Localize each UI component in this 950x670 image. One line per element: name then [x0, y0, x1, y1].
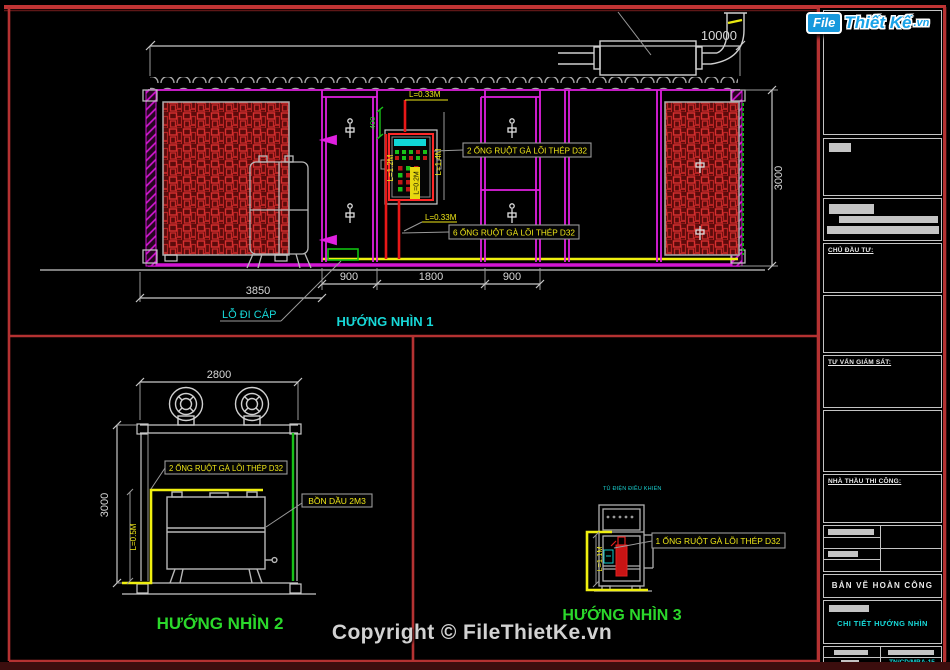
- label-2ong-text: 2 ỐNG RUỘT GÀ LÕI THÉP D32: [467, 145, 587, 156]
- copyright-watermark: Copyright © FileThietKe.vn: [322, 621, 622, 645]
- redacted-text-block: [834, 650, 868, 655]
- logo-folder-icon: File: [806, 12, 842, 34]
- label-2ong-v1: 2 ỐNG RUỘT GÀ LÕI THÉP D32: [434, 143, 591, 157]
- title-block: CHỦ ĐẦU TƯ: TƯ VẤN GIÁM SÁT: NHÀ THẦU TH…: [818, 8, 946, 668]
- dim-3850: 3850: [246, 285, 270, 297]
- sheet-borders: [4, 7, 946, 661]
- bottom-edge-strip: [0, 662, 950, 670]
- titleblock-drawing-type: BẢN VẼ HOÀN CÔNG: [823, 574, 942, 598]
- label-bondau: BỒN DẦU 2M3: [266, 494, 372, 527]
- dim-3000-v1: 3000: [773, 166, 785, 190]
- dim-10000: 10000: [701, 28, 737, 43]
- louver-panel-left: [163, 102, 289, 255]
- view1-title: HƯỚNG NHÌN 1: [337, 314, 434, 329]
- titleblock-section-1: [823, 138, 942, 196]
- view2-dim-3000: 3000: [99, 421, 138, 587]
- view1-dim-400: 400: [368, 107, 383, 139]
- dim-900a: 900: [340, 271, 358, 283]
- len-11: L=1.1M: [595, 546, 604, 571]
- redacted-text-block: [839, 216, 938, 223]
- cad-screenshot: 10000: [0, 0, 950, 670]
- label-2ong-v2-text: 2 ỐNG RUỘT GÀ LÕI THÉP D32: [169, 462, 283, 473]
- supervisor-label: TƯ VẤN GIÁM SÁT:: [828, 359, 891, 366]
- label-6ong-v1: 6 ỐNG RUỘT GÀ LÕI THÉP D32: [402, 225, 579, 239]
- dim-2800: 2800: [207, 369, 231, 381]
- len-12: L=1.2M: [386, 154, 395, 181]
- label-6ong-text: 6 ỐNG RUỘT GÀ LÕI THÉP D32: [453, 227, 575, 238]
- len-033-top: L=0.33M: [409, 90, 441, 99]
- louver-panel-right: [665, 102, 739, 255]
- drawing-title-label: CHI TIẾT HƯỚNG NHÌN: [824, 619, 941, 628]
- len-14: L=1.4M: [434, 148, 443, 175]
- view1-bottom-dims: 900 1800 900 3850: [136, 268, 544, 302]
- label-bondau-text: BỒN DẦU 2M3: [308, 495, 366, 506]
- view1-dim-3000: 3000: [740, 86, 785, 270]
- cabinet-label: TỦ ĐIỆN ĐIỀU KHIỂN: [603, 486, 662, 492]
- drawing-type-label: BẢN VẼ HOÀN CÔNG: [824, 581, 941, 590]
- exhaust-muffler: [558, 12, 747, 75]
- logo-domain: .vn: [913, 17, 929, 29]
- dim-400: 400: [368, 117, 377, 130]
- view1-dim-10000: 10000: [146, 28, 745, 76]
- dim-3000-v2: 3000: [99, 493, 111, 517]
- site-logo[interactable]: File Thiết Kế .vn: [806, 12, 929, 34]
- view2-len-bracket: L=0.5M: [127, 489, 138, 584]
- titleblock-supervisor-section: TƯ VẤN GIÁM SÁT:: [823, 355, 942, 408]
- louver-foot: [275, 255, 287, 261]
- redacted-text-block: [828, 551, 858, 557]
- dim-900b: 900: [503, 271, 521, 283]
- label-cable-text: LỖ ĐI CÁP: [222, 308, 276, 321]
- redacted-text-block: [888, 650, 934, 655]
- titleblock-section-6: [823, 410, 942, 472]
- label-2ong-v2: 2 ỐNG RUỘT GÀ LÕI THÉP D32: [151, 461, 287, 489]
- roof-fan: [236, 388, 269, 426]
- redacted-text-block: [827, 226, 939, 234]
- dim-1800: 1800: [419, 271, 443, 283]
- redacted-text-block: [829, 204, 874, 214]
- fuel-tank-end: [167, 492, 277, 583]
- view1-elevation: 10000: [40, 12, 785, 329]
- contractor-label: NHÀ THẦU THI CÔNG:: [828, 478, 901, 485]
- titleblock-sign-table: [823, 525, 942, 572]
- container-roof: [150, 77, 738, 89]
- len-033-bot: L=0.33M: [425, 213, 457, 222]
- view3-detail: L=1.1M 1 ỐNG RUỘT GÀ LÕI THÉP D32 HƯỚNG …: [562, 505, 785, 624]
- louver-foot: [165, 255, 177, 261]
- cad-drawing: 10000: [0, 0, 950, 670]
- view2-title: HƯỚNG NHÌN 2: [157, 614, 284, 633]
- redacted-text-block: [829, 143, 851, 152]
- titleblock-investor-section: CHỦ ĐẦU TƯ:: [823, 243, 942, 293]
- titleblock-contractor-section: NHÀ THẦU THI CÔNG:: [823, 474, 942, 523]
- view2-dim-2800: 2800: [136, 369, 302, 420]
- logo-text: Thiết Kế: [844, 13, 911, 33]
- redacted-text-block: [828, 529, 874, 535]
- len-02: L=0.2M: [414, 171, 421, 195]
- panel-display: [394, 139, 426, 146]
- investor-label: CHỦ ĐẦU TƯ:: [828, 247, 874, 254]
- redacted-text-block: [829, 605, 869, 612]
- label-1ong-text: 1 ỐNG RUỘT GÀ LÕI THÉP D32: [656, 535, 781, 546]
- len-05: L=0.5M: [129, 523, 138, 550]
- titleblock-drawing-title: CHI TIẾT HƯỚNG NHÌN: [823, 600, 942, 644]
- titleblock-section-4: [823, 295, 942, 353]
- view2-elevation: 2800: [99, 369, 372, 633]
- roof-fan: [170, 388, 203, 426]
- roof-fans: [170, 388, 269, 426]
- titleblock-section-2: [823, 198, 942, 241]
